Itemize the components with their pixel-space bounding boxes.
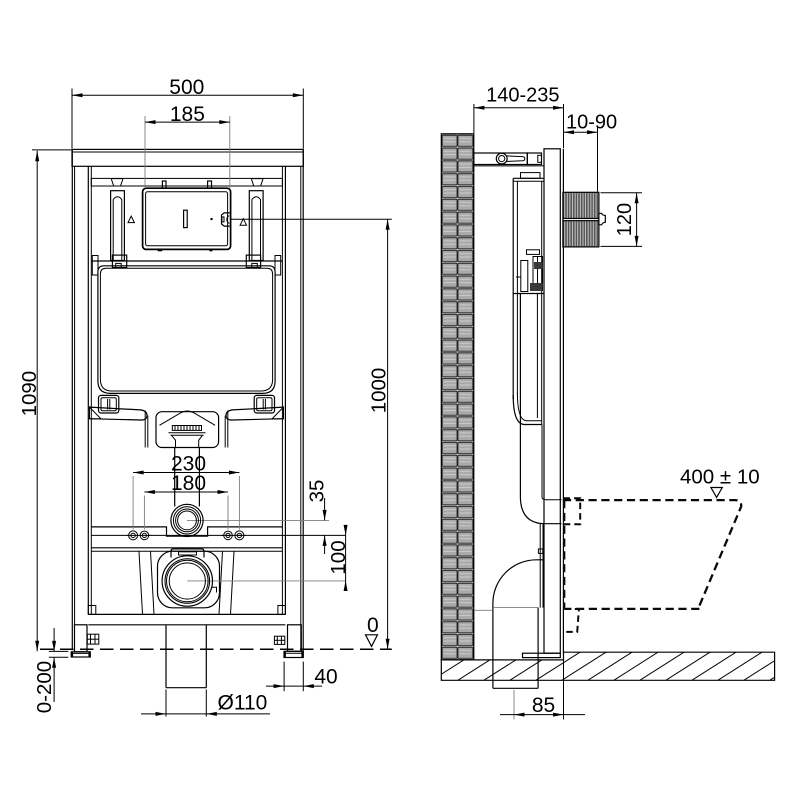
svg-text:0-200: 0-200 (33, 661, 56, 713)
svg-text:500: 500 (169, 76, 204, 99)
svg-text:35: 35 (306, 480, 329, 503)
svg-text:180: 180 (171, 472, 206, 495)
svg-text:140-235: 140-235 (486, 85, 559, 107)
svg-text:Ø110: Ø110 (218, 692, 268, 715)
svg-text:100: 100 (327, 540, 350, 574)
svg-text:10-90: 10-90 (566, 112, 617, 134)
svg-text:1000: 1000 (368, 368, 391, 414)
svg-text:40: 40 (314, 666, 337, 689)
svg-text:400 ± 10: 400 ± 10 (680, 466, 760, 489)
svg-text:85: 85 (532, 694, 555, 717)
svg-text:0: 0 (367, 614, 379, 637)
svg-text:1090: 1090 (18, 371, 41, 417)
svg-text:120: 120 (614, 203, 636, 236)
svg-text:185: 185 (170, 103, 205, 126)
